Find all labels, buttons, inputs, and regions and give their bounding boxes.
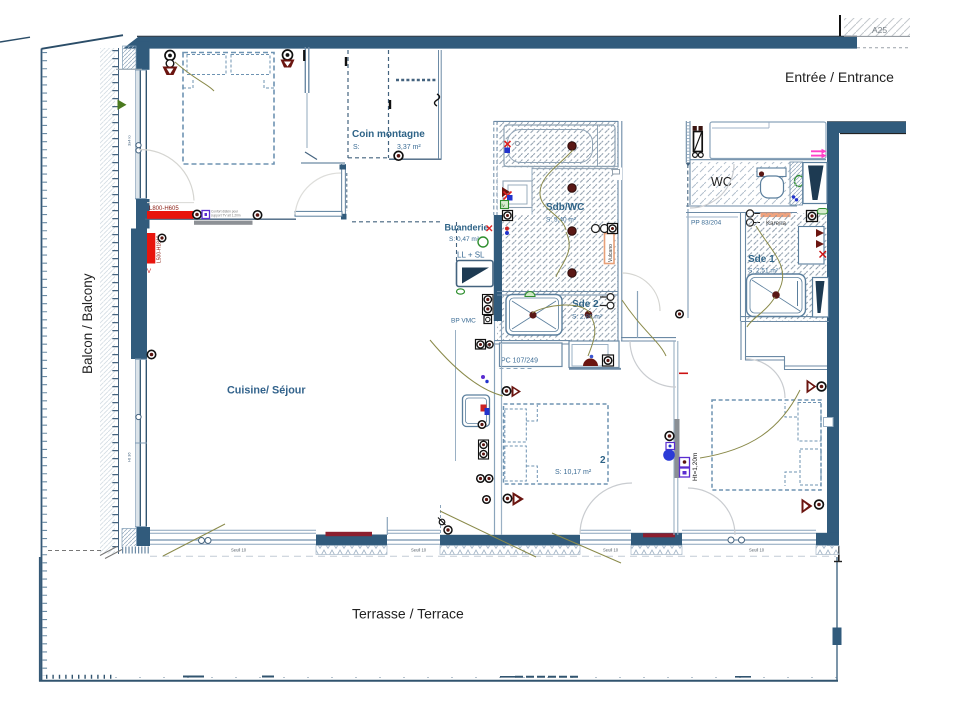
svg-text:Sde 2: Sde 2 [572,299,599,310]
svg-text:Sdb/WC: Sdb/WC [546,202,584,213]
svg-text:Seuil 10: Seuil 10 [411,548,427,553]
svg-text:Vulcano: Vulcano [608,244,614,262]
svg-text:Balcon / Balcony: Balcon / Balcony [80,273,95,374]
svg-text:Sde 1: Sde 1 [748,254,775,265]
svg-text:Ht 36: Ht 36 [127,452,132,462]
svg-text:V: V [147,269,151,275]
svg-text:PC 107/249: PC 107/249 [501,358,538,365]
svg-text:Seuil 10: Seuil 10 [603,548,619,553]
svg-text:Terrasse / Terrace: Terrasse / Terrace [352,606,464,622]
svg-text:Cuisine/ Séjour: Cuisine/ Séjour [227,385,306,397]
svg-text:Seuil 10: Seuil 10 [231,548,247,553]
svg-text:Seuil 10: Seuil 10 [749,548,765,553]
svg-text:A25: A25 [872,25,887,35]
svg-text:32: 32 [486,343,492,348]
svg-text:Buanderie: Buanderie [445,223,489,233]
svg-text:S: 10,17 m²: S: 10,17 m² [555,469,592,476]
svg-text:WC: WC [711,175,732,189]
svg-text:Entrée / Entrance: Entrée / Entrance [785,69,894,85]
svg-text:3,37 m²: 3,37 m² [397,144,421,151]
svg-text:S: 0,47 m²: S: 0,47 m² [449,236,480,243]
svg-text:3x4 lo: 3x4 lo [127,135,132,146]
svg-text:S:: S: [353,144,360,151]
svg-text:support TV alt 1,20m: support TV alt 1,20m [211,214,241,218]
svg-text:BP VMC: BP VMC [451,318,476,325]
svg-text:LL + SL: LL + SL [457,251,485,260]
svg-text:S: 5,40 m²: S: 5,40 m² [546,217,577,224]
svg-text:S: 2,86 m²: S: 2,86 m² [572,314,603,321]
svg-text:2: 2 [600,455,606,466]
svg-text:PP 83/204: PP 83/204 [691,220,722,227]
svg-text:Coin montagne: Coin montagne [352,129,425,140]
svg-text:Ht=1,20m: Ht=1,20m [692,453,699,481]
